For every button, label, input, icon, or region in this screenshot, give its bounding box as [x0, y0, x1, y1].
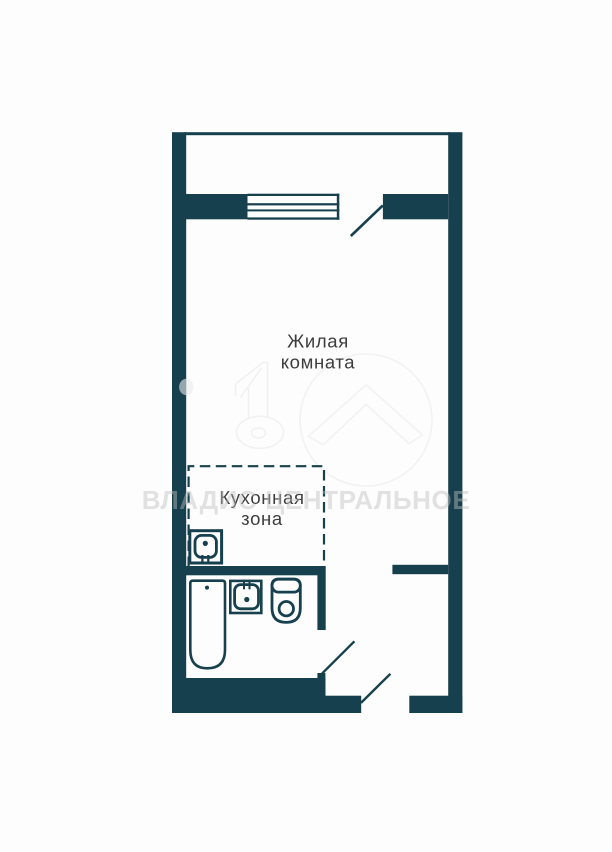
svg-text:комната: комната [281, 351, 356, 372]
svg-text:ВЛАДИС ЦЕНТРАЛЬНОЕ: ВЛАДИС ЦЕНТРАЛЬНОЕ [142, 485, 471, 515]
svg-text:Жилая: Жилая [287, 330, 349, 351]
